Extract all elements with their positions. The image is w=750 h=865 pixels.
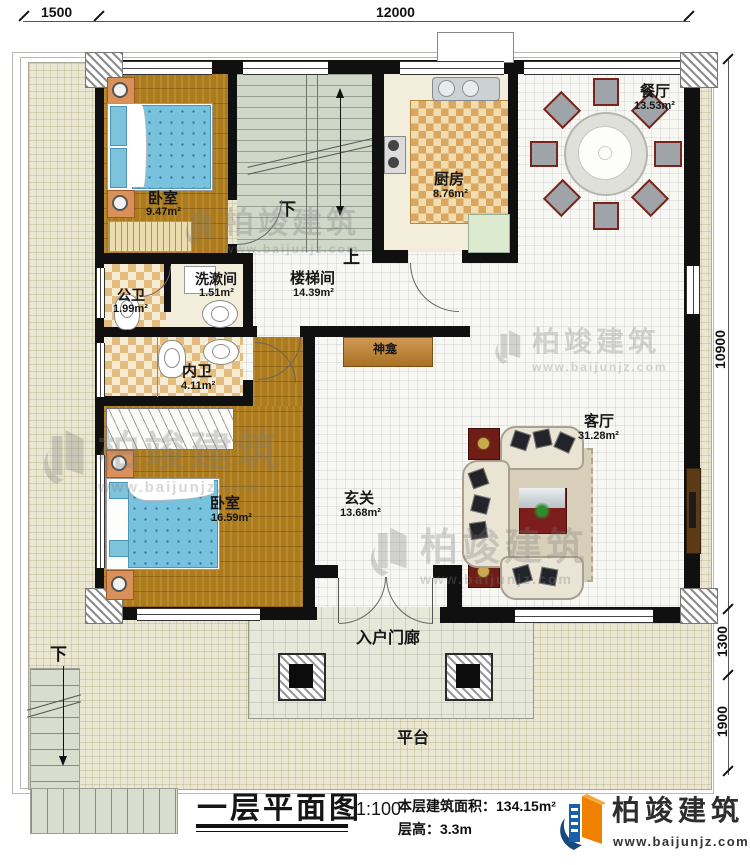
shower-partition bbox=[157, 337, 158, 397]
title-underline-thick bbox=[196, 824, 348, 828]
room-label-dining: 餐厅 bbox=[640, 84, 670, 101]
outdoor-stair-landing bbox=[30, 788, 178, 834]
room-label-kitchen: 厨房 bbox=[434, 172, 464, 189]
drawing-title: 一层平面图 bbox=[197, 792, 362, 825]
room-label-terrace: 平台 bbox=[397, 730, 429, 748]
room-label-public-bath: 公卫 bbox=[117, 288, 145, 303]
sofa-pillow bbox=[469, 521, 488, 540]
arrow-down-icon bbox=[336, 206, 344, 216]
stair-up-label: 上 bbox=[343, 249, 360, 268]
wardrobe bbox=[106, 408, 234, 450]
brand-logo-icon bbox=[556, 792, 608, 859]
porch-column-core bbox=[456, 664, 480, 688]
dining-chair bbox=[654, 141, 682, 167]
dining-chair bbox=[593, 202, 619, 230]
top-dimension-line bbox=[23, 21, 690, 22]
room-area-inner-bath: 4.11m² bbox=[181, 380, 215, 392]
window-inner-bath bbox=[96, 343, 105, 397]
dimension-1900: 1900 bbox=[714, 706, 730, 737]
sofa-pillow bbox=[532, 428, 552, 448]
wall-bedroom2-foyer bbox=[303, 337, 315, 607]
window-bedroom2-bottom bbox=[137, 608, 260, 621]
lamp-icon bbox=[111, 576, 127, 592]
window-bedroom2-left bbox=[96, 455, 105, 568]
burner-icon bbox=[388, 157, 399, 168]
outdoor-stair-down-label: 下 bbox=[50, 646, 67, 665]
floor-height-line: 层高：3.3m bbox=[398, 819, 472, 839]
floor-area-label: 本层建筑面积： bbox=[398, 798, 496, 814]
brand-name: 柏竣建筑 bbox=[612, 796, 744, 827]
room-area-bedroom2: 16.59m² bbox=[211, 512, 252, 524]
dimension-tick bbox=[18, 10, 29, 21]
wall-bedroom1-bottom bbox=[95, 253, 245, 264]
wall-stair-kitchen bbox=[372, 60, 384, 253]
dimension-10900: 10900 bbox=[712, 330, 728, 369]
room-label-inner-bath: 内卫 bbox=[182, 364, 212, 381]
window-stairwell bbox=[243, 61, 328, 75]
floor-plan-canvas: 1500 12000 10900 1300 1900 下 下 上 bbox=[0, 0, 750, 865]
window-living-right bbox=[686, 266, 700, 314]
drawing-scale: 1:100 bbox=[356, 800, 401, 820]
lamp-icon bbox=[112, 82, 128, 98]
wall-bedroom1-right-upper bbox=[228, 60, 237, 200]
wall-mid-horizontal-b bbox=[300, 326, 470, 337]
dining-table-center bbox=[598, 146, 612, 160]
dimension-1500: 1500 bbox=[41, 4, 72, 20]
room-area-dining: 13.53m² bbox=[634, 100, 675, 112]
room-area-washroom: 1.51m² bbox=[199, 287, 234, 299]
window-dining bbox=[524, 61, 680, 75]
fridge bbox=[468, 214, 510, 253]
floor-area-value: 134.15m² bbox=[496, 798, 556, 814]
dimension-12000: 12000 bbox=[376, 4, 415, 20]
room-label-foyer: 玄关 bbox=[344, 491, 374, 508]
room-area-public-bath: 1.99m² bbox=[113, 303, 148, 315]
room-area-living: 31.28m² bbox=[578, 430, 619, 442]
room-area-bedroom1: 9.47m² bbox=[146, 206, 181, 218]
room-label-entry-porch: 入户门廊 bbox=[356, 630, 420, 648]
floor-area-line: 本层建筑面积：134.15m² bbox=[398, 796, 556, 816]
bed-sheet-fold bbox=[128, 105, 147, 187]
room-label-stairwell: 楼梯间 bbox=[290, 271, 335, 288]
room-area-foyer: 13.68m² bbox=[340, 507, 381, 519]
washbasin-bowl bbox=[211, 306, 229, 322]
burner-icon bbox=[388, 140, 399, 151]
brand-url: www.baijunjz.com bbox=[613, 835, 749, 849]
stair-stringer bbox=[306, 74, 318, 252]
corner-hatch bbox=[680, 588, 718, 624]
lamp-icon bbox=[112, 195, 128, 211]
room-label-living: 客厅 bbox=[584, 414, 614, 431]
wall-bath-row bbox=[95, 327, 253, 337]
wall-hall-left-upper bbox=[243, 253, 253, 337]
outdoor-stair-flight bbox=[30, 668, 80, 790]
arrow-up-icon bbox=[336, 88, 344, 98]
stair-direction-line bbox=[63, 666, 64, 756]
wall-entry-return bbox=[447, 578, 462, 618]
kitchen-mat bbox=[410, 100, 512, 224]
room-area-stairwell: 14.39m² bbox=[293, 287, 334, 299]
window-kitchen bbox=[400, 61, 504, 75]
dining-chair bbox=[593, 78, 619, 106]
porch-column-core bbox=[289, 664, 313, 688]
wall-mid-horizontal-a bbox=[243, 326, 257, 337]
dimension-1300: 1300 bbox=[714, 626, 730, 657]
sink-bowl bbox=[462, 80, 479, 97]
dimension-tick bbox=[93, 10, 104, 21]
room-area-kitchen: 8.76m² bbox=[433, 188, 468, 200]
window-public-bath bbox=[96, 268, 105, 318]
wall-entry-stub-right bbox=[433, 565, 462, 578]
washbasin-bowl bbox=[212, 344, 230, 359]
room-label-bedroom2: 卧室 bbox=[210, 496, 240, 513]
corner-hatch bbox=[680, 52, 718, 88]
roof-flue-bump bbox=[437, 32, 514, 63]
arrow-down-icon bbox=[59, 756, 67, 766]
plant-icon bbox=[533, 502, 551, 520]
window-bedroom1 bbox=[122, 61, 212, 75]
dimension-tick bbox=[683, 10, 694, 21]
floor-height-value: 3.3m bbox=[440, 821, 472, 837]
room-label-washroom: 洗漱间 bbox=[195, 272, 237, 287]
wall-innerbath-bottom bbox=[95, 396, 253, 406]
window-living-bottom bbox=[515, 609, 653, 623]
tv-icon bbox=[689, 492, 696, 528]
toilet-bowl bbox=[164, 348, 180, 368]
title-underline-thin bbox=[196, 831, 348, 832]
pillow bbox=[110, 106, 127, 146]
floor-height-label: 层高： bbox=[398, 821, 440, 837]
shrine-label: 神龛 bbox=[373, 343, 397, 356]
right-dimension-line bbox=[728, 60, 729, 775]
stair-direction-line bbox=[340, 96, 341, 208]
side-table-decor-icon bbox=[477, 437, 490, 450]
wall-kitchen-bottom-a bbox=[372, 250, 408, 263]
lamp-icon bbox=[111, 455, 127, 471]
dining-chair bbox=[530, 141, 558, 167]
sofa-pillow bbox=[539, 567, 559, 587]
bedroom1-rug bbox=[108, 221, 192, 252]
sink-bowl bbox=[438, 80, 455, 97]
pillow bbox=[110, 148, 127, 188]
